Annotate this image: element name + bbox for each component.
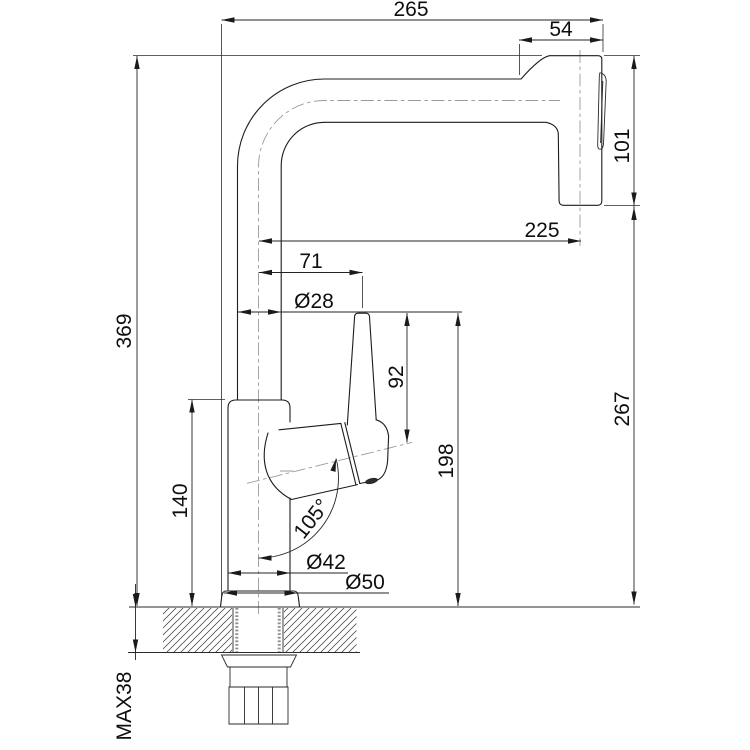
dim-label-spout-reach: 225: [524, 219, 559, 242]
arrowhead: [404, 430, 409, 443]
arrowhead: [228, 570, 241, 575]
arrowhead: [455, 593, 460, 606]
dim-label-outlet-height: 198: [435, 443, 458, 478]
housing-ring-line-1: [341, 423, 356, 484]
dim-label-max-counter-thickness: MAX38: [113, 672, 136, 741]
arrowhead: [590, 17, 603, 22]
housing-bottom-edge: [292, 485, 358, 500]
dim-label-body-diameter: Ø42: [306, 551, 346, 574]
dim-label-body-height: 140: [169, 483, 192, 518]
housing-ring-line-2: [345, 423, 360, 484]
dim-label-handle-offset: 71: [299, 250, 322, 273]
mounting-collar: [230, 667, 287, 687]
dimension-lines: [136, 20, 635, 660]
arrowhead: [631, 56, 636, 69]
counter-hatch-left: [163, 608, 232, 652]
mounting-washer: [222, 655, 297, 667]
arrowhead: [631, 207, 636, 220]
dim-label-head-width: 54: [549, 18, 573, 41]
dim-label-total-height: 369: [113, 313, 136, 348]
arrowhead: [189, 400, 194, 413]
arrowhead: [631, 193, 636, 206]
handle-lever: [347, 313, 376, 425]
housing-top-edge: [279, 423, 341, 429]
arrowhead: [277, 570, 290, 575]
faucet-technical-drawing: 265 54 225 71 Ø28 Ø42 Ø50 369 140 MAX38 …: [0, 0, 750, 750]
arrowhead: [350, 270, 363, 275]
dim-label-handle-rise: 92: [385, 365, 408, 388]
arrowhead: [189, 593, 194, 606]
dim-label-right-height: 267: [611, 391, 634, 426]
arrowhead: [519, 37, 532, 42]
cap-detail-hole: [365, 477, 379, 485]
arrowhead: [222, 17, 235, 22]
nut-facet-lines: [245, 687, 273, 724]
cartridge-dome-arc: [264, 433, 291, 500]
arrowhead: [259, 238, 272, 243]
dim-label-overall-width: 265: [393, 0, 428, 21]
countertop-section: [128, 607, 640, 724]
arrowhead: [590, 37, 603, 42]
counter-hatch-right: [284, 608, 357, 652]
faucet-outline: [221, 56, 607, 607]
drawing-canvas: 265 54 225 71 Ø28 Ø42 Ø50 369 140 MAX38 …: [0, 0, 750, 750]
dim-label-head-height: 101: [611, 128, 634, 163]
arrowhead: [259, 270, 272, 275]
handle-cap-outline: [360, 420, 389, 484]
arrowhead: [133, 640, 138, 653]
dimension-arrowheads: [133, 17, 637, 652]
dim-label-base-diameter: Ø50: [345, 571, 385, 594]
arrowhead: [568, 238, 581, 243]
arrowhead: [238, 309, 251, 314]
arrowhead: [455, 313, 460, 326]
arrowhead: [134, 56, 139, 69]
arrowhead: [631, 592, 636, 605]
arrowhead: [268, 309, 281, 314]
body-column: [228, 400, 290, 590]
arrowhead: [404, 313, 409, 326]
arrowhead: [259, 555, 272, 560]
dim-label-pipe-diameter: Ø28: [294, 290, 334, 313]
